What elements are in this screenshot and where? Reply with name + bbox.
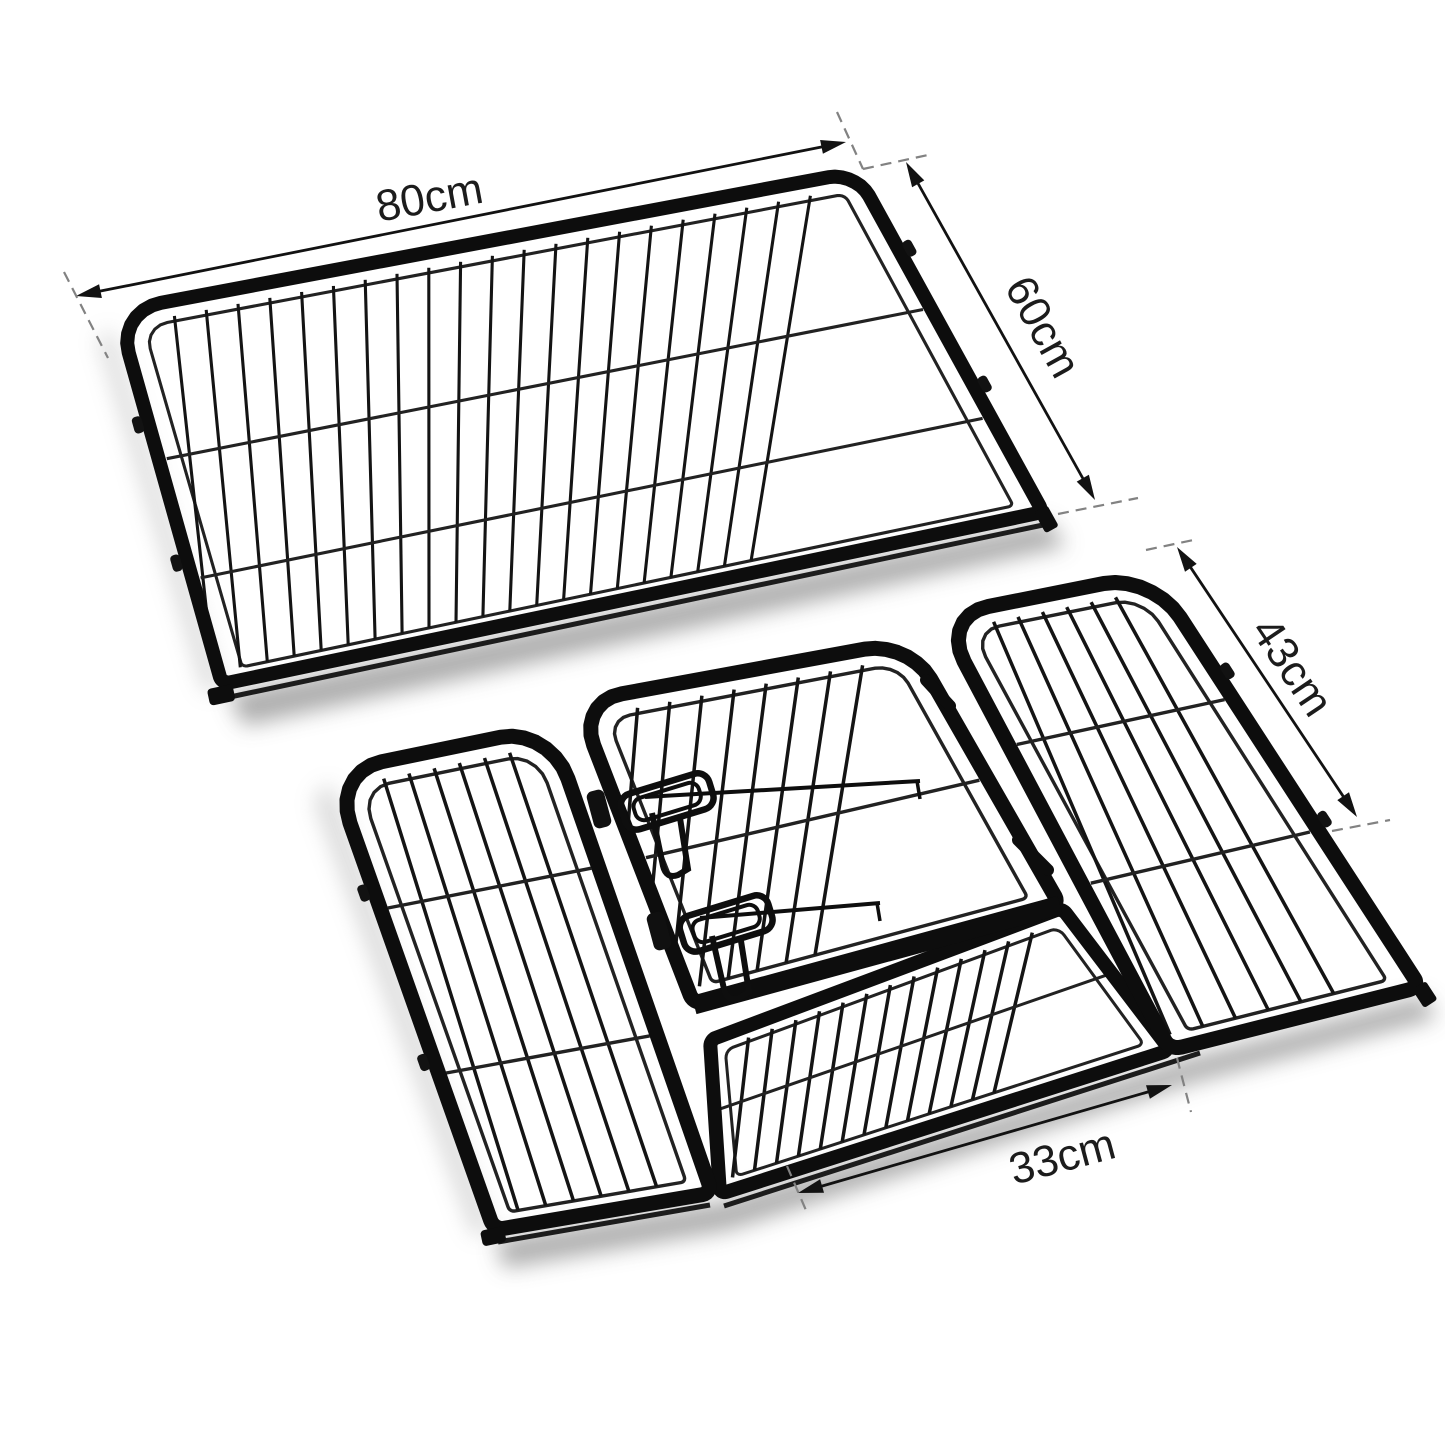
svg-text:60cm: 60cm	[995, 268, 1090, 386]
svg-text:80cm: 80cm	[372, 164, 487, 232]
